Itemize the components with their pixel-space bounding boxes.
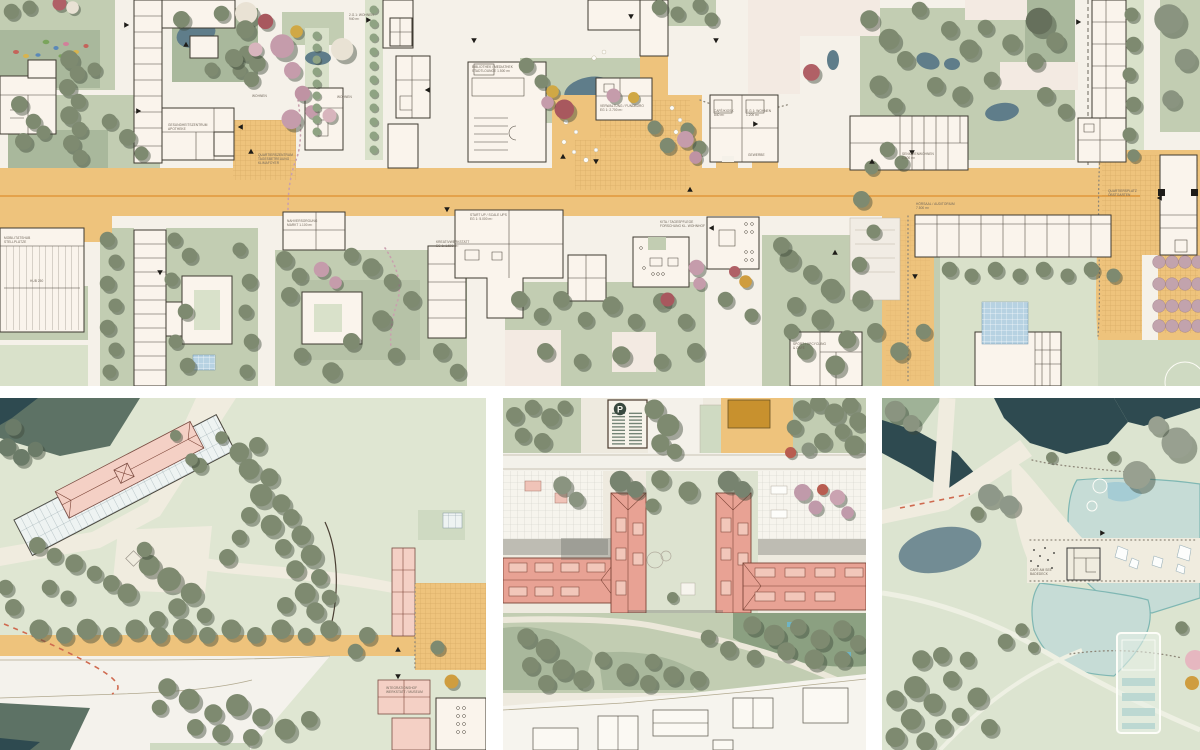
svg-text:MARKT 1.100 m²: MARKT 1.100 m² (287, 223, 312, 227)
parking-symbol: P (617, 404, 623, 414)
svg-text:EG 1: 2.700 m²: EG 1: 2.700 m² (600, 108, 622, 112)
svg-text:1.200 m²: 1.200 m² (746, 113, 759, 117)
svg-text:840 m²: 840 m² (714, 113, 724, 117)
svg-text:WOHNEN: WOHNEN (337, 95, 352, 99)
svg-text:GEWERBE: GEWERBE (748, 153, 765, 157)
svg-text:940 m²: 940 m² (349, 17, 359, 21)
svg-text:STADTLOUNGE 1.500 m²: STADTLOUNGE 1.500 m² (472, 69, 510, 73)
svg-text:BADEDECK: BADEDECK (1030, 572, 1049, 576)
panel-masterplan: BIBLIOTHEK / MEDIATHEK STADTLOUNGE 1.500… (0, 0, 1200, 386)
boardwalk (1027, 530, 1200, 583)
panel-lake-detail: CAFÉ AM SEE BADEDECK (882, 398, 1200, 750)
svg-text:WERKSTATT / MUSEUM: WERKSTATT / MUSEUM (386, 690, 423, 694)
svg-text:STELLPLÄTZE: STELLPLÄTZE (4, 240, 26, 244)
panel-courtyard-detail: P (503, 398, 866, 750)
svg-text:7.500 m²: 7.500 m² (916, 206, 929, 210)
svg-text:KLIMAFOYER: KLIMAFOYER (258, 161, 280, 165)
svg-text:FORSCHUNG KL. WOHNHOF: FORSCHUNG KL. WOHNHOF (660, 224, 705, 228)
svg-text:EG 1: 5.000 m²: EG 1: 5.000 m² (470, 217, 492, 221)
svg-text:WOHNEN: WOHNEN (252, 94, 267, 98)
panel-park-detail: INTEGRATIONSHOF WERKSTATT / MUSEUM (0, 398, 486, 750)
svg-text:& CAFÉ: & CAFÉ (793, 345, 805, 350)
svg-text:1.400 m²: 1.400 m² (902, 156, 915, 160)
svg-text:OBSTGARTEN: OBSTGARTEN (1108, 193, 1131, 197)
svg-text:EG 1: 1.500 m²: EG 1: 1.500 m² (436, 244, 458, 248)
svg-text:APOTHEKE: APOTHEKE (168, 127, 186, 131)
svg-text:HUB 250: HUB 250 (30, 279, 43, 283)
masterplan-board: BIBLIOTHEK / MEDIATHEK STADTLOUNGE 1.500… (0, 0, 1200, 750)
